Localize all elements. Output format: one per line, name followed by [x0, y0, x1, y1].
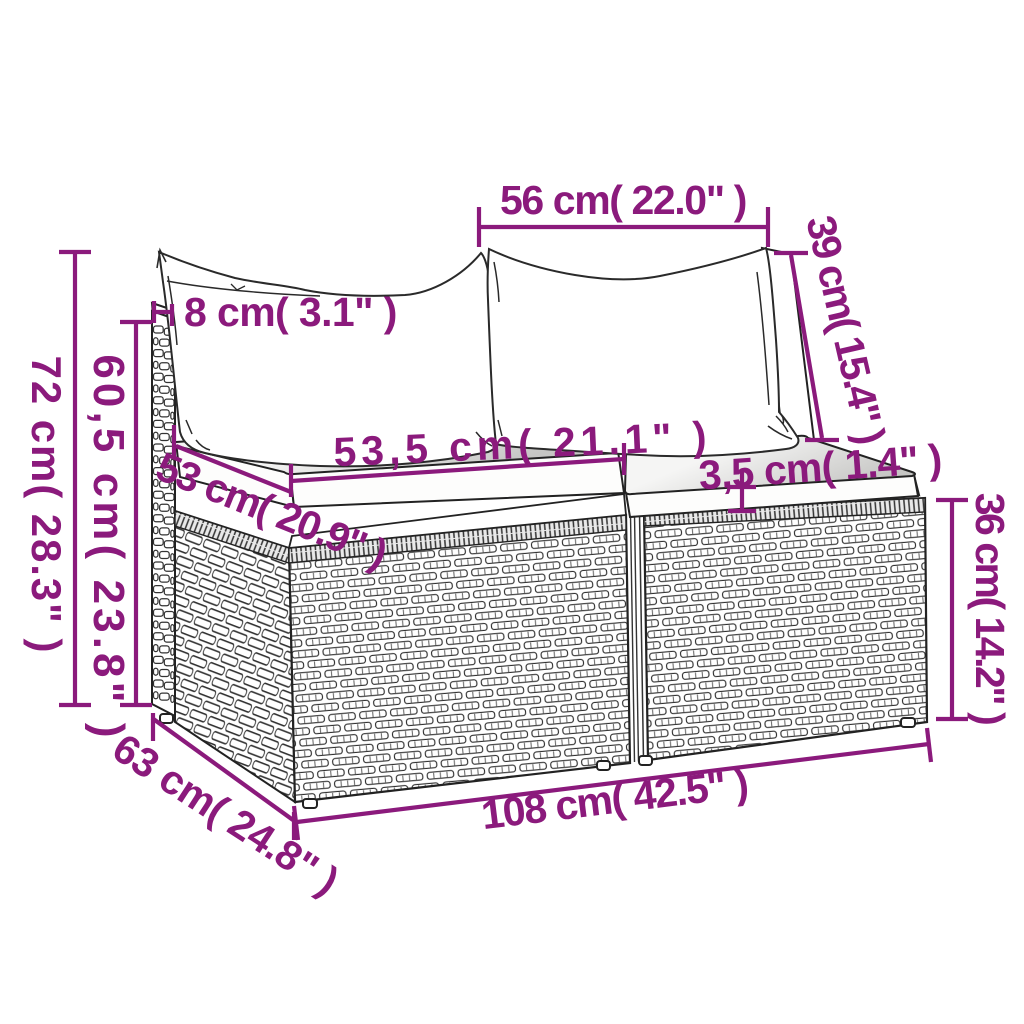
svg-text:8 cm( 3.1" ): 8 cm( 3.1" ): [184, 289, 397, 335]
svg-text:60,5 cm( 23.8" ): 60,5 cm( 23.8" ): [84, 354, 133, 741]
svg-text:36 cm( 14.2" ): 36 cm( 14.2" ): [967, 493, 1013, 724]
svg-text:56 cm( 22.0" ): 56 cm( 22.0" ): [500, 177, 746, 223]
svg-text:72 cm( 28.3" ): 72 cm( 28.3" ): [23, 356, 70, 655]
